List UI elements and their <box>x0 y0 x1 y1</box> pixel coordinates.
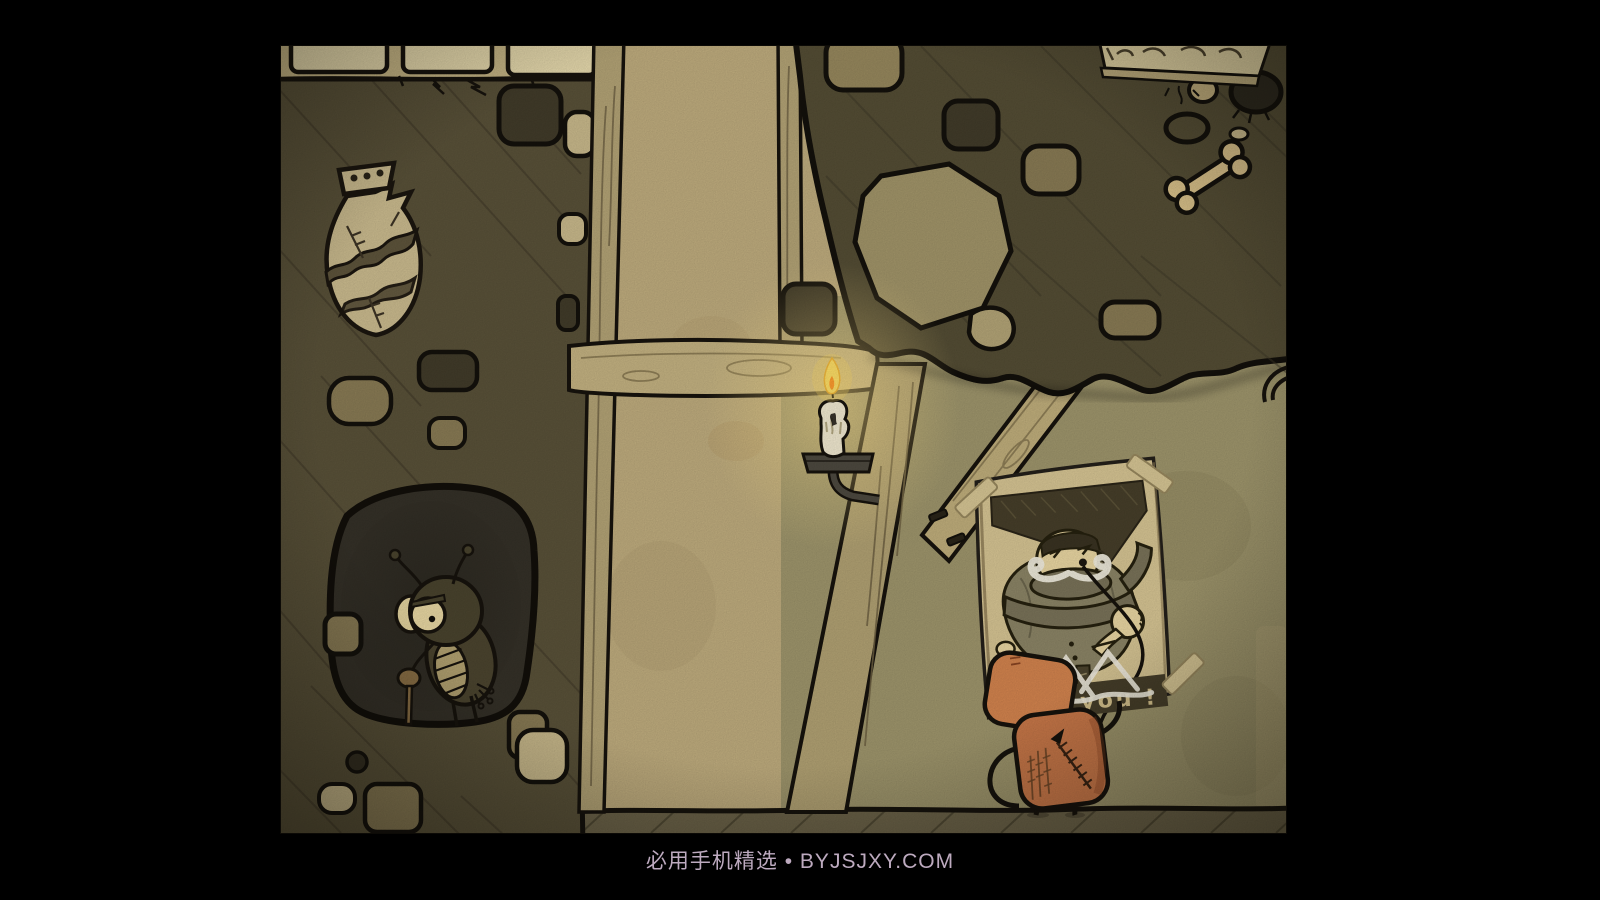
scene-canvas: nt you ! <box>281 46 1286 833</box>
game-viewport: nt you ! <box>281 46 1286 833</box>
watermark-text: 必用手机精选 • BYJSJXY.COM <box>646 845 954 875</box>
vignette <box>281 46 1286 833</box>
screen: nt you ! <box>0 0 1600 900</box>
